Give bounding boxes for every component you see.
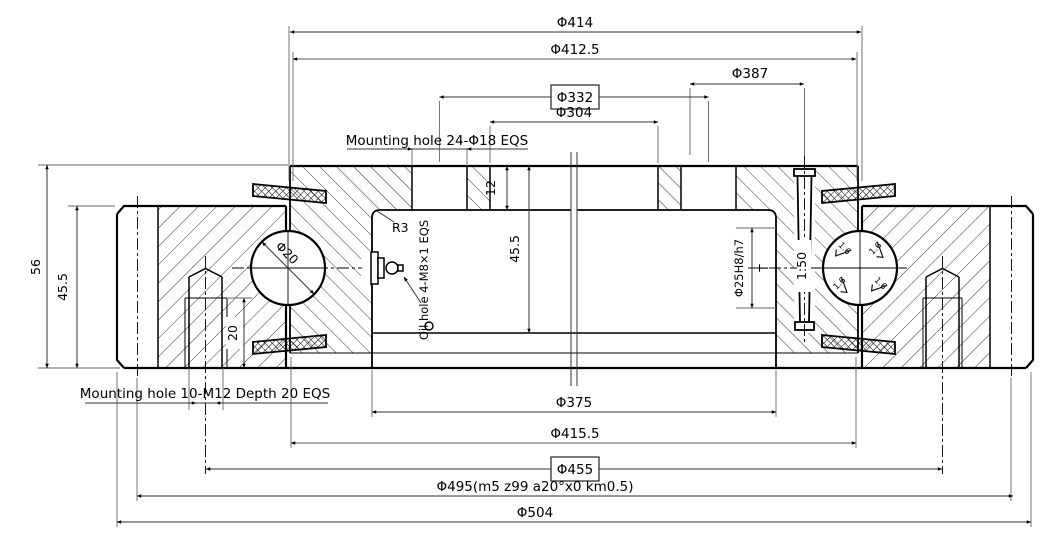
dim-495-gear: Φ495(m5 z99 a20°x0 km0.5) [436, 479, 633, 495]
dim-414: Φ414 [557, 15, 593, 31]
dim-12: 12 [483, 180, 498, 196]
dim-415-5: Φ415.5 [550, 426, 599, 442]
bearing-section-drawing: Φ414 Φ412.5 Φ387 Φ332 Φ304 Mounting hole… [0, 0, 1061, 557]
dim-25h8h7: Φ25H8/h7 [732, 239, 746, 297]
dim-taper-1-50: 1:50 [794, 252, 809, 280]
dim-t: T [756, 264, 771, 273]
dimension-texts: Φ414 Φ412.5 Φ387 Φ332 Φ304 Mounting hole… [28, 15, 811, 521]
dim-375: Φ375 [556, 395, 592, 411]
dim-455: Φ455 [557, 462, 593, 478]
label-oil-hole: Oil hole 4-M8×1 EQS [417, 220, 431, 340]
dim-504: Φ504 [517, 505, 553, 521]
dim-412-5: Φ412.5 [550, 42, 599, 58]
dim-304: Φ304 [556, 105, 592, 121]
dim-387: Φ387 [732, 66, 768, 82]
label-r3: R3 [392, 220, 409, 235]
label-mounting-hole-top: Mounting hole 24-Φ18 EQS [346, 133, 529, 149]
grease-fitting [371, 252, 403, 284]
break-lines [571, 152, 577, 386]
dim-56: 56 [28, 259, 43, 275]
dim-20: 20 [225, 325, 240, 341]
dim-45-5-mid: 45.5 [507, 235, 522, 263]
dim-332: Φ332 [557, 90, 593, 106]
dim-45-5-left: 45.5 [55, 273, 70, 301]
label-mounting-hole-bottom: Mounting hole 10-M12 Depth 20 EQS [80, 386, 330, 402]
engineering-drawing-slewing-bearing: Φ414 Φ412.5 Φ387 Φ332 Φ304 Mounting hole… [0, 0, 1061, 557]
